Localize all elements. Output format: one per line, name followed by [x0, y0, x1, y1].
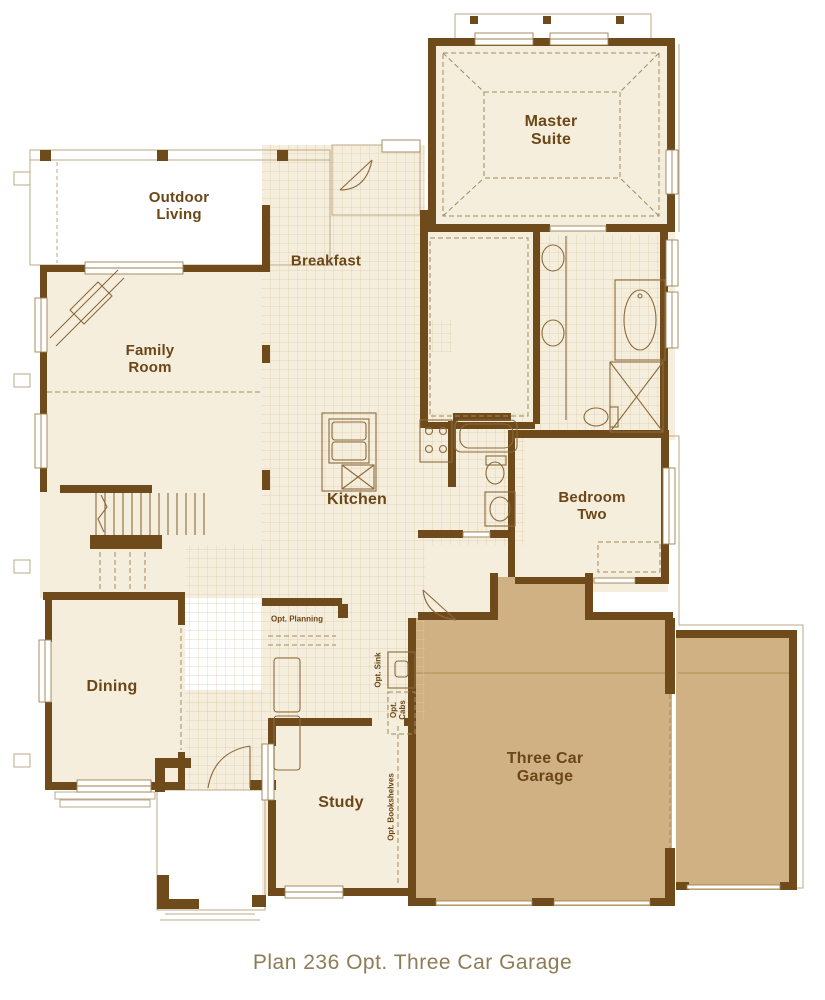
label-opt-cabs: Opt. Cabs: [390, 700, 408, 720]
label-opt-sink: Opt. Sink: [375, 652, 384, 687]
label-garage: Three Car Garage: [507, 750, 584, 786]
label-dining: Dining: [87, 678, 138, 696]
floor-plan-drawing: [0, 0, 825, 1000]
label-bedroom-two: Bedroom Two: [558, 490, 625, 524]
label-kitchen: Kitchen: [327, 491, 387, 509]
label-family-room: Family Room: [126, 343, 175, 377]
label-outdoor-living: Outdoor Living: [149, 190, 210, 224]
plan-caption: Plan 236 Opt. Three Car Garage: [0, 951, 825, 975]
room-garage-bay-floor: [676, 630, 796, 890]
label-study: Study: [318, 794, 363, 812]
floor-plan-page: Master Suite Outdoor Living Breakfast Fa…: [0, 0, 825, 1000]
garage-floor-layer: [410, 577, 796, 906]
label-master-suite: Master Suite: [525, 113, 578, 149]
label-breakfast: Breakfast: [291, 254, 361, 271]
room-family-floor: [40, 265, 270, 490]
label-opt-bookshelves: Opt. Bookshelves: [388, 773, 397, 841]
label-opt-planning: Opt. Planning: [271, 616, 323, 625]
